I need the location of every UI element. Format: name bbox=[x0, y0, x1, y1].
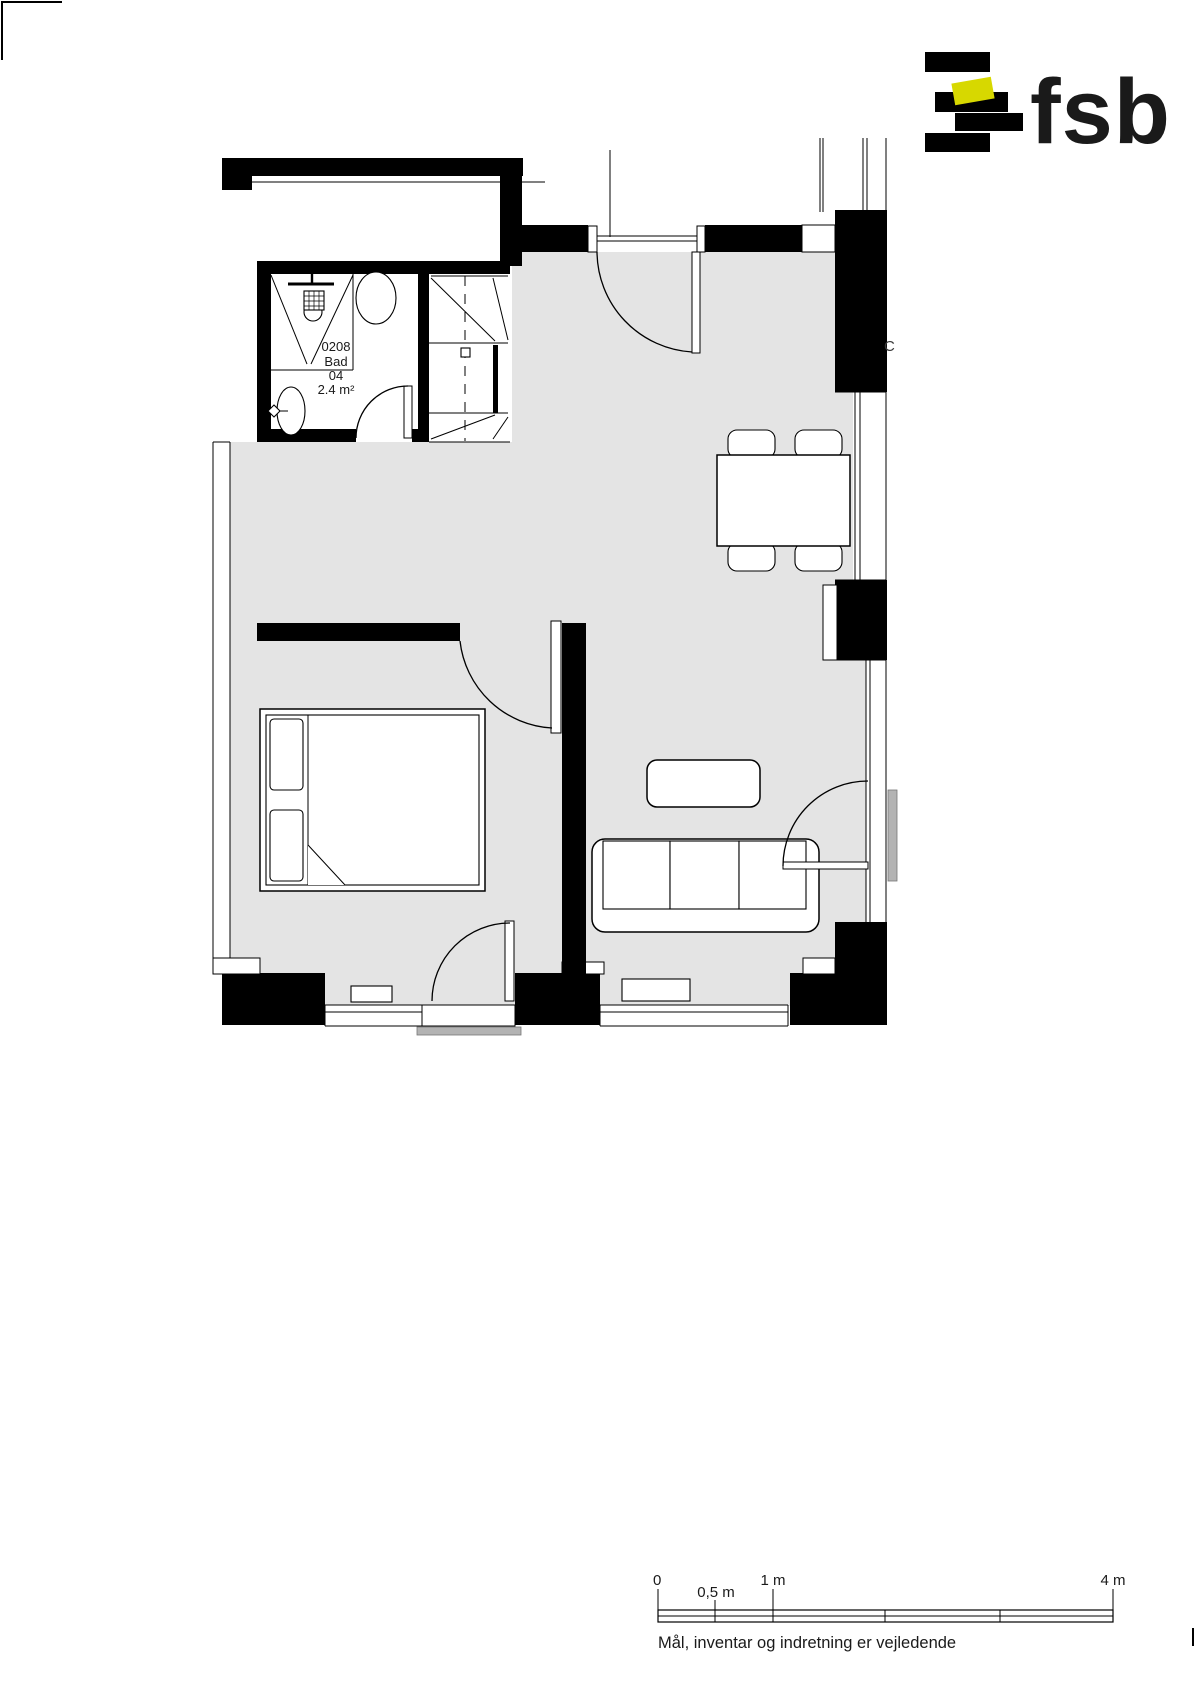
scale-tick-4: 4 m bbox=[1100, 1572, 1125, 1589]
toilet-icon bbox=[356, 272, 396, 324]
chair-icon bbox=[795, 430, 842, 458]
bathroom-wall-left bbox=[257, 261, 271, 442]
bathroom-door bbox=[356, 386, 412, 438]
scale-tick-0: 0 bbox=[653, 1572, 661, 1589]
floor-plan-drawing: fsb bbox=[0, 0, 1200, 1702]
wall-notch bbox=[803, 958, 835, 974]
bathroom: 0208 Bad 04 2.4 m² bbox=[268, 268, 412, 438]
wardrobe-icon bbox=[429, 276, 510, 442]
logo-bar-icon bbox=[925, 133, 990, 152]
wall-pier-bottom-left bbox=[222, 973, 325, 1025]
wall-notch bbox=[213, 958, 260, 974]
grid-label: C bbox=[884, 338, 895, 355]
bathroom-wall-bottom bbox=[257, 429, 356, 442]
wall-entry-left bbox=[510, 225, 588, 252]
radiator-icon bbox=[622, 979, 690, 1001]
wall-corner-right bbox=[790, 973, 837, 1025]
logo-bar-icon bbox=[955, 113, 1023, 131]
bathroom-wall-right bbox=[418, 274, 429, 442]
wall-partition bbox=[562, 623, 586, 975]
scale-tick-05: 0,5 m bbox=[697, 1584, 735, 1601]
room-name: Bad bbox=[324, 354, 347, 369]
wall-entry-right bbox=[705, 225, 802, 252]
upper-corridor bbox=[230, 138, 886, 237]
dining-table-icon bbox=[717, 455, 850, 546]
chair-icon bbox=[728, 543, 775, 571]
wall-right-pier bbox=[835, 580, 887, 660]
room-number: 0208 bbox=[322, 339, 351, 354]
wall-stub bbox=[222, 158, 252, 190]
bathroom-room-label: 0208 Bad 04 2.4 m² bbox=[318, 339, 356, 397]
scale-tick-1: 1 m bbox=[760, 1572, 785, 1589]
coffee-table-icon bbox=[647, 760, 760, 807]
fsb-logo: fsb bbox=[925, 52, 1171, 163]
radiator-icon bbox=[351, 986, 392, 1002]
balcony-slab bbox=[417, 1027, 521, 1035]
sofa-icon bbox=[592, 839, 819, 932]
floor-plan-page: fsb bbox=[0, 0, 1200, 1702]
balcony-slab bbox=[888, 790, 897, 881]
logo-bar-icon bbox=[925, 52, 990, 72]
bed-icon bbox=[260, 709, 485, 891]
room-area: 2.4 m² bbox=[318, 382, 356, 397]
sink-icon bbox=[268, 387, 305, 435]
wall-notch bbox=[802, 225, 835, 252]
wall-notch bbox=[823, 585, 837, 660]
logo-text: fsb bbox=[1030, 61, 1171, 163]
bathroom-wall-top bbox=[257, 261, 510, 274]
wall-bedroom bbox=[257, 623, 460, 641]
disclaimer-text: Mål, inventar og indretning er vejledend… bbox=[658, 1634, 956, 1652]
chair-icon bbox=[728, 430, 775, 458]
wall-right-upper bbox=[835, 210, 887, 392]
crop-mark-top-left-icon bbox=[2, 2, 62, 60]
bathroom-wall-bottom bbox=[412, 429, 429, 442]
room-unit: 04 bbox=[329, 368, 343, 383]
chair-icon bbox=[795, 543, 842, 571]
wall-top bbox=[222, 158, 523, 176]
wall-pier-bottom-mid bbox=[515, 973, 600, 1025]
scale-bar: 0 0,5 m 1 m 4 m bbox=[653, 1572, 1126, 1622]
wall-corner-right bbox=[835, 922, 887, 1025]
